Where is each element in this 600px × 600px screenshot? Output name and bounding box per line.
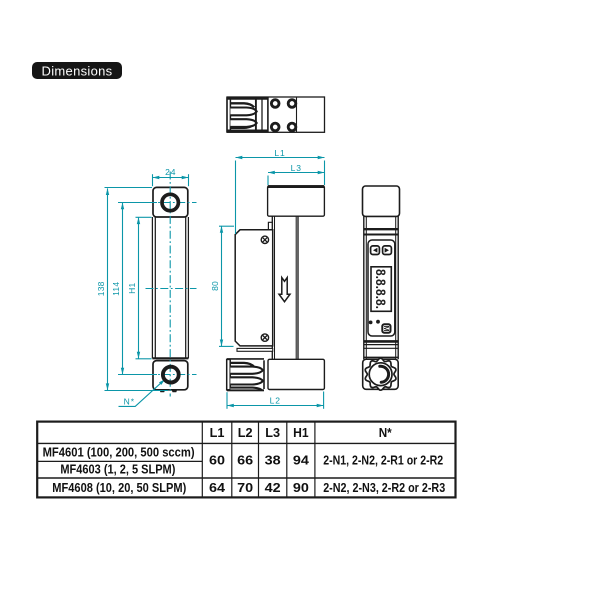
svg-text:Dimensions: Dimensions: [42, 64, 113, 79]
svg-text:L2: L2: [270, 396, 281, 406]
svg-text:80: 80: [210, 281, 220, 291]
svg-text:2-N2, 2-N3, 2-R2 or 2-R3: 2-N2, 2-N3, 2-R2 or 2-R3: [323, 480, 445, 495]
svg-text:H1: H1: [127, 283, 137, 294]
svg-text:8.8.8.8.: 8.8.8.8.: [373, 269, 389, 309]
svg-text:94: 94: [293, 453, 310, 468]
svg-text:L3: L3: [291, 163, 302, 173]
svg-text:MF4603 (1, 2, 5 SLPM): MF4603 (1, 2, 5 SLPM): [60, 462, 175, 477]
svg-text:L2: L2: [238, 425, 253, 440]
svg-text:L3: L3: [265, 425, 280, 440]
svg-text:66: 66: [237, 453, 253, 468]
svg-text:H1: H1: [293, 425, 309, 440]
svg-text:N*: N*: [124, 397, 135, 407]
svg-text:2-N1, 2-N2, 2-R1 or 2-R2: 2-N1, 2-N2, 2-R1 or 2-R2: [323, 453, 443, 468]
svg-text:138: 138: [96, 281, 106, 296]
svg-text:90: 90: [293, 480, 309, 495]
svg-text:42: 42: [265, 480, 281, 495]
svg-text:70: 70: [237, 480, 253, 495]
svg-text:MF4608 (10, 20, 50 SLPM): MF4608 (10, 20, 50 SLPM): [52, 480, 186, 495]
svg-text:M: M: [382, 326, 391, 332]
svg-text:24: 24: [165, 167, 176, 177]
svg-text:MF4601 (100, 200, 500 sccm): MF4601 (100, 200, 500 sccm): [43, 445, 195, 460]
svg-text:L1: L1: [210, 425, 225, 440]
svg-text:114: 114: [111, 282, 121, 296]
svg-text:N*: N*: [379, 425, 393, 440]
svg-text:L1: L1: [274, 148, 285, 158]
svg-text:60: 60: [209, 453, 225, 468]
svg-text:64: 64: [209, 480, 226, 495]
svg-text:38: 38: [265, 453, 281, 468]
